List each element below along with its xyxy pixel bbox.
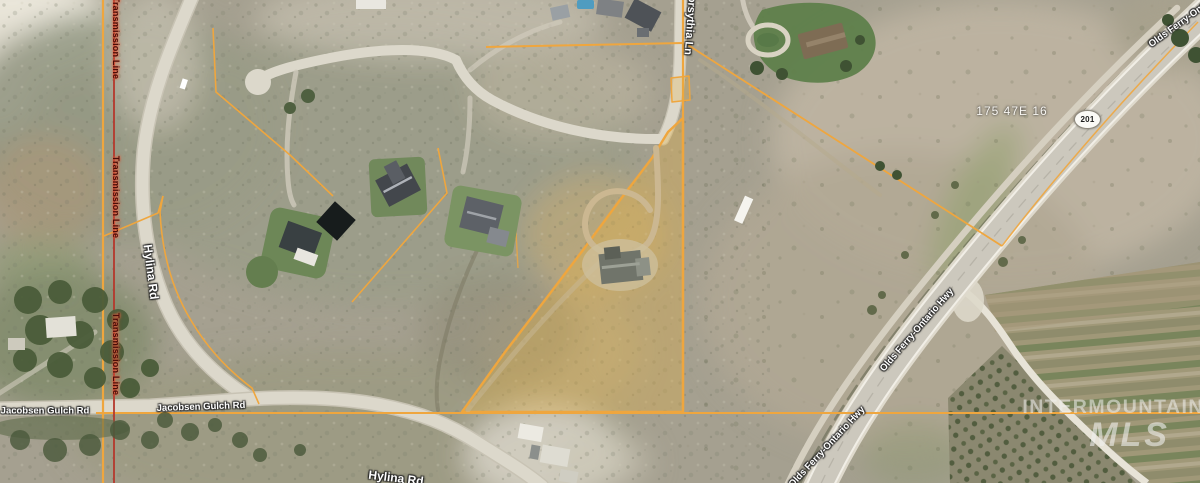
- flag-lot: [671, 76, 690, 102]
- highway-shield-201: 201: [1074, 110, 1101, 129]
- map-graphics: [0, 0, 1200, 483]
- highway-shield-number: 201: [1081, 115, 1095, 124]
- house-roof: [45, 316, 76, 338]
- shed: [8, 338, 25, 350]
- cul-de-sac: [245, 69, 271, 95]
- shed: [637, 28, 649, 37]
- white-building: [356, 0, 386, 9]
- swimming-pool: [577, 0, 594, 9]
- satellite-map[interactable]: Transmission Line Transmission Line Tran…: [0, 0, 1200, 483]
